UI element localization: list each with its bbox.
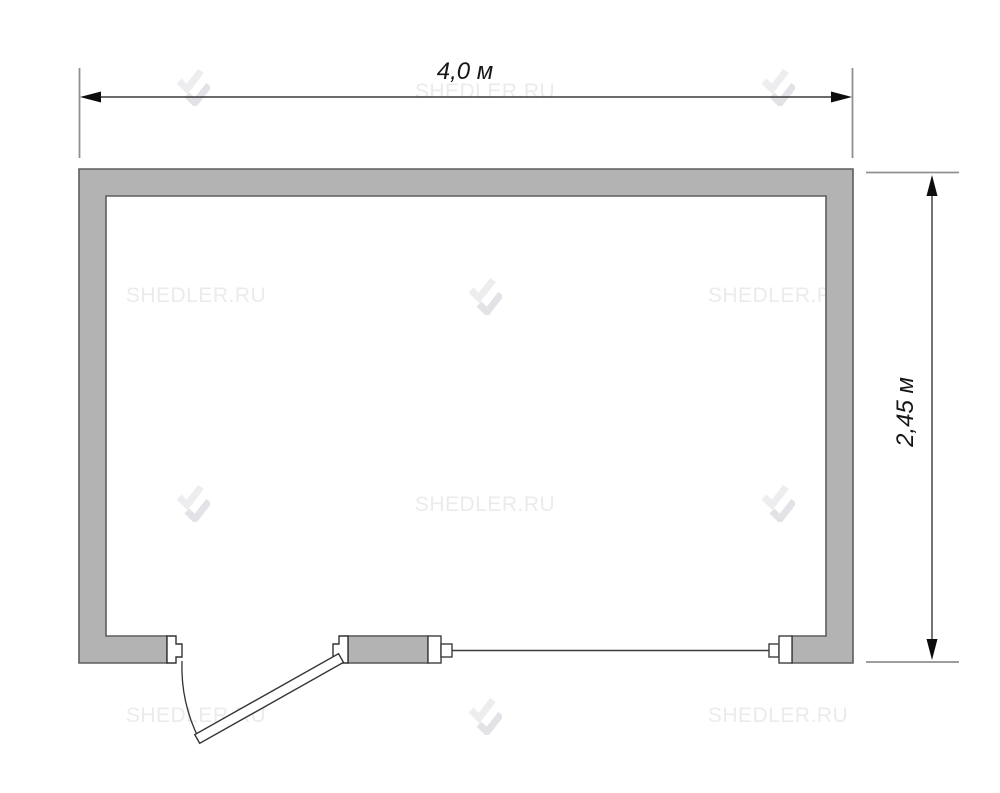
- arrowhead-right-icon: [831, 92, 852, 103]
- wall-segment-between-door-and-window: [348, 636, 428, 663]
- door-leaf: [195, 654, 344, 744]
- window-frame-right: [779, 636, 792, 663]
- door-swing-arc: [182, 661, 199, 739]
- door: [167, 636, 348, 743]
- window: [428, 636, 792, 663]
- arrowhead-down-icon: [927, 639, 938, 660]
- walls: [79, 169, 853, 663]
- floor-plan-drawing: [0, 0, 1000, 793]
- arrowhead-up-icon: [927, 175, 938, 196]
- arrowhead-left-icon: [80, 92, 101, 103]
- window-frame-left: [428, 636, 441, 663]
- door-jamb-left-icon: [167, 636, 182, 663]
- width-dimension-label: 4,0 м: [437, 58, 493, 86]
- height-dimension-label: 2,45 м: [892, 377, 920, 447]
- window-knob-left: [441, 644, 452, 657]
- window-knob-right: [769, 644, 779, 657]
- wall-ring: [79, 169, 853, 663]
- floor-plan-page: SHEDLER.RU SHEDLER.RU SHEDLER.RU SHEDLER…: [0, 0, 1000, 793]
